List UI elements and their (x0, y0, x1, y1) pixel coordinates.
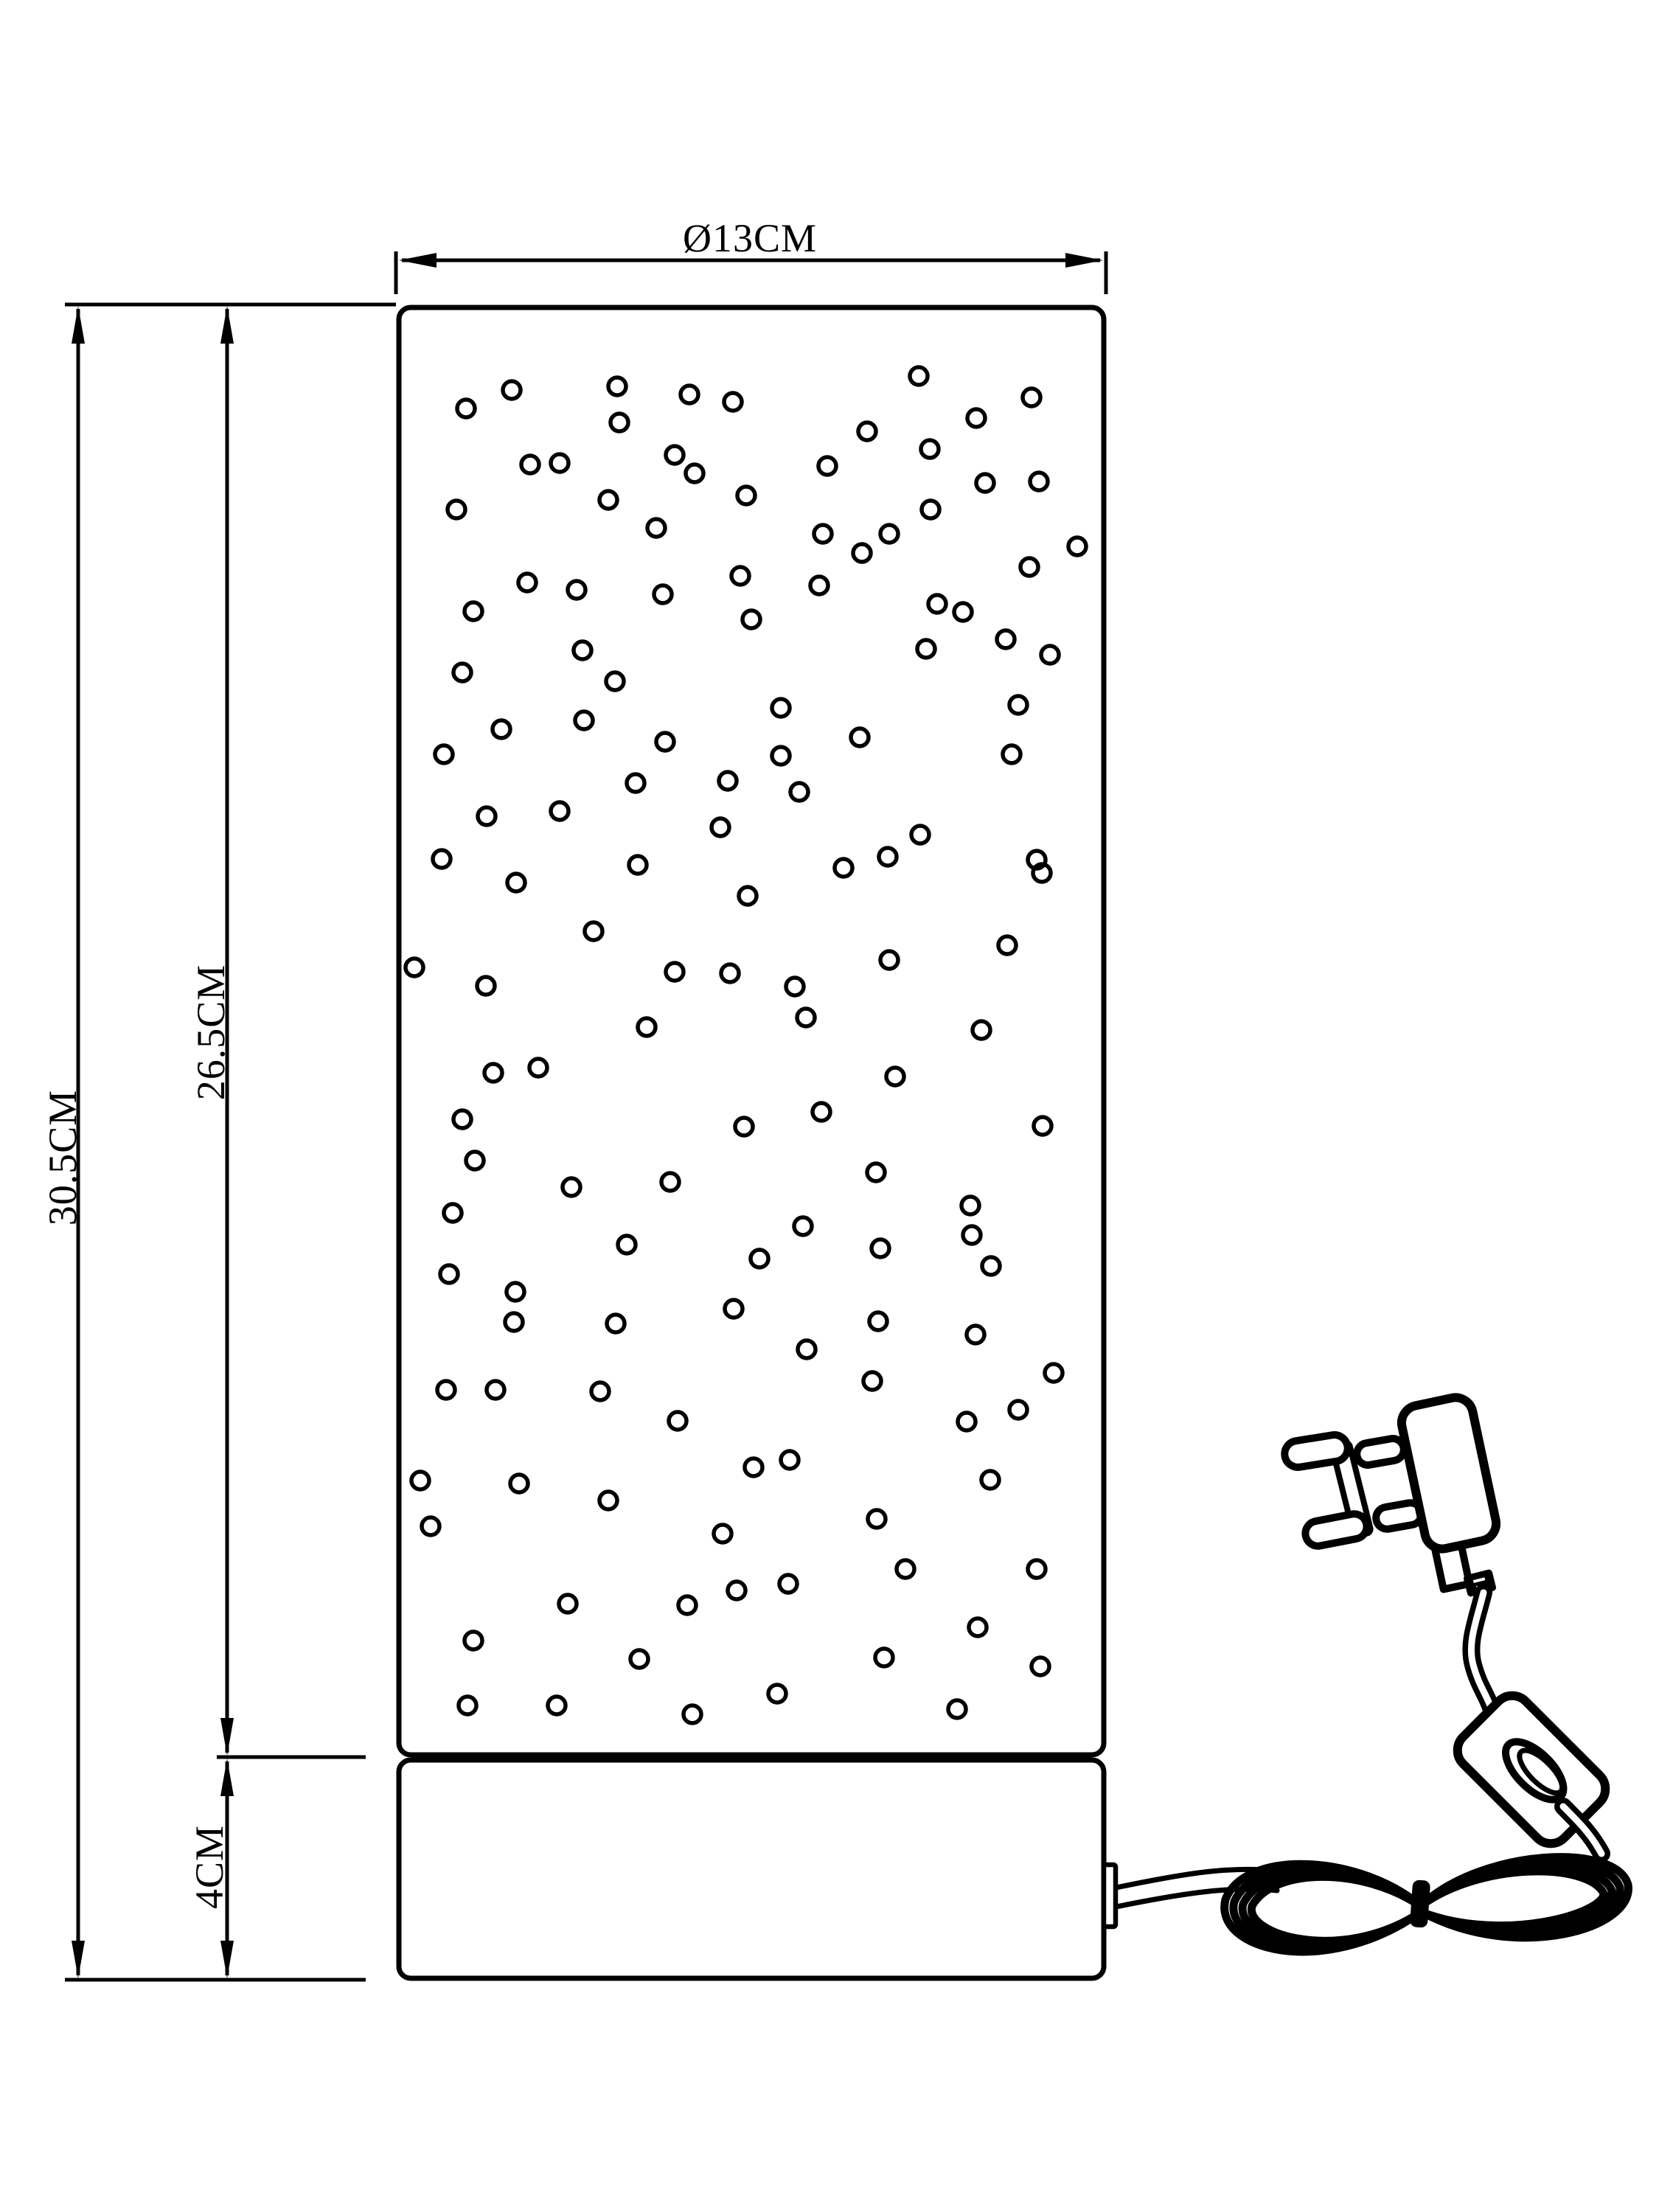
bubble-hole (521, 456, 539, 473)
bubble-hole (638, 1018, 655, 1036)
bubble-hole (507, 1283, 524, 1301)
bubble-hole (917, 640, 935, 658)
lamp-bubble-panel (399, 307, 1104, 1755)
bubble-hole (786, 978, 804, 995)
bubble-hole (737, 487, 755, 504)
bubble-hole (669, 1412, 686, 1430)
bubble-hole (835, 859, 852, 877)
body-height-arrow-bottom (220, 1718, 234, 1756)
total-height-arrow-top (72, 306, 85, 344)
plug-earth-pin (1283, 1433, 1350, 1469)
bubble-hole (678, 1596, 696, 1614)
bubble-hole (880, 951, 898, 969)
width-dim-arrow-left (399, 253, 437, 268)
bubble-hole (568, 581, 585, 599)
bubble-hole (818, 457, 836, 475)
bubble-hole (666, 446, 684, 464)
bubble-hole (585, 922, 602, 940)
bubble-hole (794, 1217, 812, 1235)
bubble-hole (772, 699, 790, 717)
bubble-hole (910, 367, 928, 385)
bubble-hole (406, 959, 423, 976)
bubble-hole (477, 977, 495, 995)
bubble-hole (728, 1582, 745, 1599)
bubble-hole (627, 774, 644, 792)
coil-knot (1410, 1879, 1430, 1928)
bubble-hole (714, 1525, 731, 1543)
bubble-hole (503, 381, 521, 399)
bubble-hole (606, 672, 624, 690)
bubble-hole (1045, 1364, 1062, 1382)
bubble-hole (529, 1059, 547, 1077)
bubble-hole (1030, 473, 1048, 490)
bubble-hole (563, 1178, 580, 1196)
base-height-arrow-top (220, 1759, 234, 1796)
bubble-hole (1041, 646, 1059, 664)
bubble-hole (954, 603, 972, 621)
plug-pin-upper (1355, 1437, 1405, 1467)
bubble-hole (559, 1595, 577, 1613)
bubble-hole (790, 783, 808, 801)
base-height-arrow-bottom (220, 1941, 234, 1978)
bubble-hole (981, 1471, 999, 1489)
bubble-hole (853, 544, 871, 562)
bubble-hole (872, 1239, 889, 1257)
plug-body (1398, 1394, 1499, 1552)
bubble-hole (599, 1492, 617, 1509)
bubble-hole (739, 887, 757, 905)
bubble-hole (851, 728, 869, 746)
bubble-hole (433, 850, 451, 868)
bubble-hole (510, 1475, 528, 1492)
bubble-hole (630, 1650, 648, 1668)
width-dimension-label: Ø13CM (683, 216, 817, 260)
bubble-hole (437, 1381, 455, 1399)
bubble-hole (998, 936, 1016, 954)
bubble-hole (724, 393, 742, 411)
width-dim-arrow-right (1065, 253, 1103, 268)
diagram-page: Ø13CM 30.5CM 26.5CM 4CM (0, 0, 1659, 2212)
bubble-hole (963, 1226, 981, 1244)
bubble-hole (548, 1697, 566, 1714)
bubble-hole (629, 856, 647, 874)
bubble-hole (725, 1300, 742, 1318)
bubble-hole (810, 577, 828, 594)
bubble-hole (518, 574, 536, 591)
body-height-arrow-top (220, 306, 234, 344)
bubble-hole (465, 1632, 482, 1649)
bubble-hole (863, 1372, 881, 1390)
bubble-hole (618, 1236, 636, 1253)
bubble-hole (1009, 1401, 1027, 1419)
bubble-hole (798, 1340, 815, 1358)
bubble-hole (666, 963, 684, 981)
lamp-base (399, 1760, 1104, 1978)
bubble-holes (406, 367, 1086, 1723)
bubble-hole (686, 465, 703, 482)
bubble-hole (599, 491, 617, 509)
bubble-hole (880, 525, 898, 543)
bubble-hole (647, 519, 665, 537)
bubble-hole (1032, 1658, 1049, 1675)
bubble-hole (921, 440, 939, 458)
body-height-label: 26.5CM (189, 964, 233, 1101)
bubble-hole (453, 664, 471, 681)
cable-plug-to-switch (1471, 1593, 1491, 1708)
bubble-hole (591, 1382, 609, 1400)
bubble-hole (611, 414, 628, 431)
bubble-hole (1023, 389, 1040, 406)
bubble-hole (948, 1700, 966, 1718)
bubble-hole (721, 964, 739, 982)
cable-entry-tab (1104, 1865, 1116, 1927)
bubble-hole (967, 1326, 984, 1343)
bubble-hole (768, 1685, 786, 1703)
bubble-hole (551, 802, 568, 820)
bubble-hole (928, 595, 946, 613)
bubble-hole (505, 1313, 523, 1331)
bubble-hole (813, 1103, 830, 1121)
bubble-hole (976, 474, 994, 492)
bubble-hole (779, 1575, 797, 1593)
bubble-hole (1009, 696, 1027, 714)
lamp-outline (399, 307, 1116, 1978)
bubble-hole (712, 818, 729, 836)
bubble-hole (1028, 1560, 1046, 1578)
bubble-hole (875, 1649, 893, 1666)
bubble-hole (814, 525, 832, 543)
bubble-hole (493, 720, 510, 738)
bubble-hole (772, 747, 790, 765)
bubble-hole (869, 1312, 887, 1330)
bubble-hole (973, 1021, 990, 1039)
bubble-hole (1020, 558, 1038, 576)
bubble-hole (858, 422, 876, 440)
bubble-hole (507, 874, 525, 891)
bubble-hole (411, 1472, 429, 1489)
bubble-hole (574, 641, 591, 659)
bubble-hole (897, 1560, 914, 1578)
bubble-hole (868, 1510, 886, 1528)
bubble-hole (484, 1064, 502, 1082)
bubble-hole (797, 1009, 815, 1026)
bubble-hole (731, 567, 749, 585)
bubble-hole (478, 807, 495, 825)
bubble-hole (448, 501, 465, 518)
base-height-label: 4CM (187, 1825, 232, 1909)
bubble-hole (982, 1257, 1000, 1275)
bubble-hole (1034, 1117, 1051, 1135)
lamp-dimension-diagram: Ø13CM 30.5CM 26.5CM 4CM (0, 0, 1659, 2212)
bubble-hole (886, 1068, 904, 1085)
bubble-hole (879, 848, 897, 866)
plug-plate-arm (1304, 1512, 1369, 1548)
bubble-hole (661, 1173, 679, 1191)
bubble-hole (681, 386, 698, 403)
bubble-hole (719, 772, 737, 790)
power-cable-coil (1116, 1857, 1628, 1952)
bubble-hole (435, 745, 453, 763)
bubble-hole (997, 630, 1015, 648)
total-height-arrow-bottom (72, 1941, 85, 1978)
bubble-hole (1003, 745, 1020, 763)
bubble-hole (459, 1697, 476, 1714)
bubble-hole (465, 602, 482, 620)
bubble-hole (922, 501, 939, 518)
bubble-hole (457, 400, 475, 417)
bubble-hole (751, 1250, 768, 1267)
bubble-hole (742, 611, 760, 628)
bubble-hole (444, 1204, 462, 1222)
power-plug (1283, 1394, 1500, 1597)
bubble-hole (453, 1110, 471, 1128)
bubble-hole (1068, 538, 1086, 555)
bubble-hole (961, 1197, 979, 1214)
bubble-hole (440, 1265, 458, 1283)
bubble-hole (607, 1315, 625, 1332)
bubble-hole (867, 1164, 885, 1181)
bubble-hole (466, 1152, 484, 1169)
bubble-hole (745, 1458, 762, 1476)
bubble-hole (958, 1413, 975, 1430)
bubble-hole (551, 454, 568, 472)
bubble-hole (487, 1381, 504, 1399)
bubble-hole (654, 585, 672, 603)
bubble-hole (656, 733, 674, 751)
bubble-hole (608, 378, 626, 395)
bubble-hole (911, 826, 929, 844)
bubble-hole (781, 1451, 799, 1469)
bubble-hole (422, 1517, 439, 1535)
bubble-hole (967, 409, 985, 427)
bubble-hole (735, 1118, 753, 1135)
bubble-hole (575, 712, 593, 729)
bubble-hole (969, 1618, 987, 1636)
total-height-label: 30.5CM (41, 1090, 85, 1226)
bubble-hole (684, 1705, 701, 1723)
